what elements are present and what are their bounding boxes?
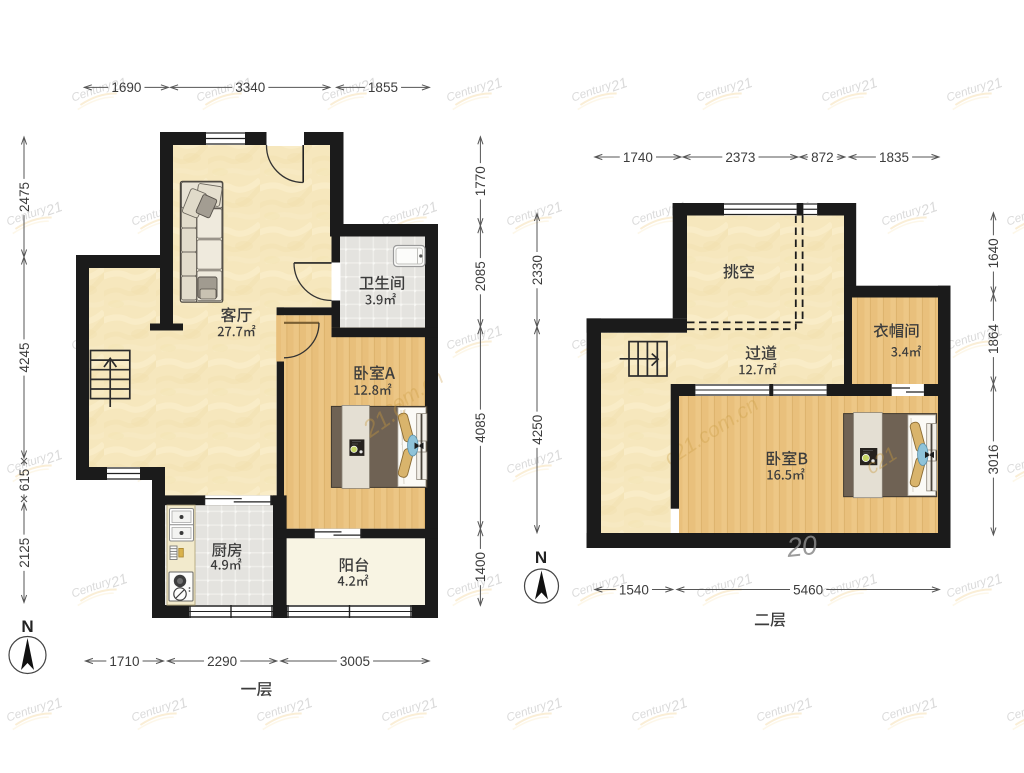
svg-text:1835: 1835 (879, 150, 909, 165)
svg-text:3005: 3005 (340, 654, 370, 669)
svg-text:615: 615 (17, 469, 32, 492)
svg-text:1864: 1864 (986, 323, 1001, 354)
svg-text:1855: 1855 (368, 80, 398, 95)
svg-text:1540: 1540 (619, 582, 649, 597)
svg-text:1710: 1710 (109, 654, 139, 669)
svg-text:1400: 1400 (473, 552, 488, 582)
svg-text:1690: 1690 (111, 80, 141, 95)
svg-text:N: N (21, 617, 33, 636)
svg-text:2330: 2330 (530, 255, 545, 285)
svg-text:1770: 1770 (473, 166, 488, 196)
svg-text:5460: 5460 (793, 582, 823, 597)
svg-text:2125: 2125 (17, 538, 32, 568)
svg-text:20: 20 (784, 530, 818, 563)
svg-text:4245: 4245 (17, 342, 32, 372)
svg-text:1740: 1740 (623, 150, 653, 165)
svg-text:4250: 4250 (530, 415, 545, 445)
svg-text:1640: 1640 (986, 238, 1001, 268)
svg-text:3016: 3016 (986, 444, 1001, 474)
svg-text:2373: 2373 (725, 150, 755, 165)
svg-text:4085: 4085 (473, 413, 488, 443)
svg-text:3340: 3340 (235, 80, 265, 95)
svg-text:2475: 2475 (17, 182, 32, 212)
svg-text:2085: 2085 (473, 261, 488, 291)
svg-text:N: N (535, 548, 547, 567)
svg-text:872: 872 (811, 150, 834, 165)
svg-text:2290: 2290 (207, 654, 237, 669)
